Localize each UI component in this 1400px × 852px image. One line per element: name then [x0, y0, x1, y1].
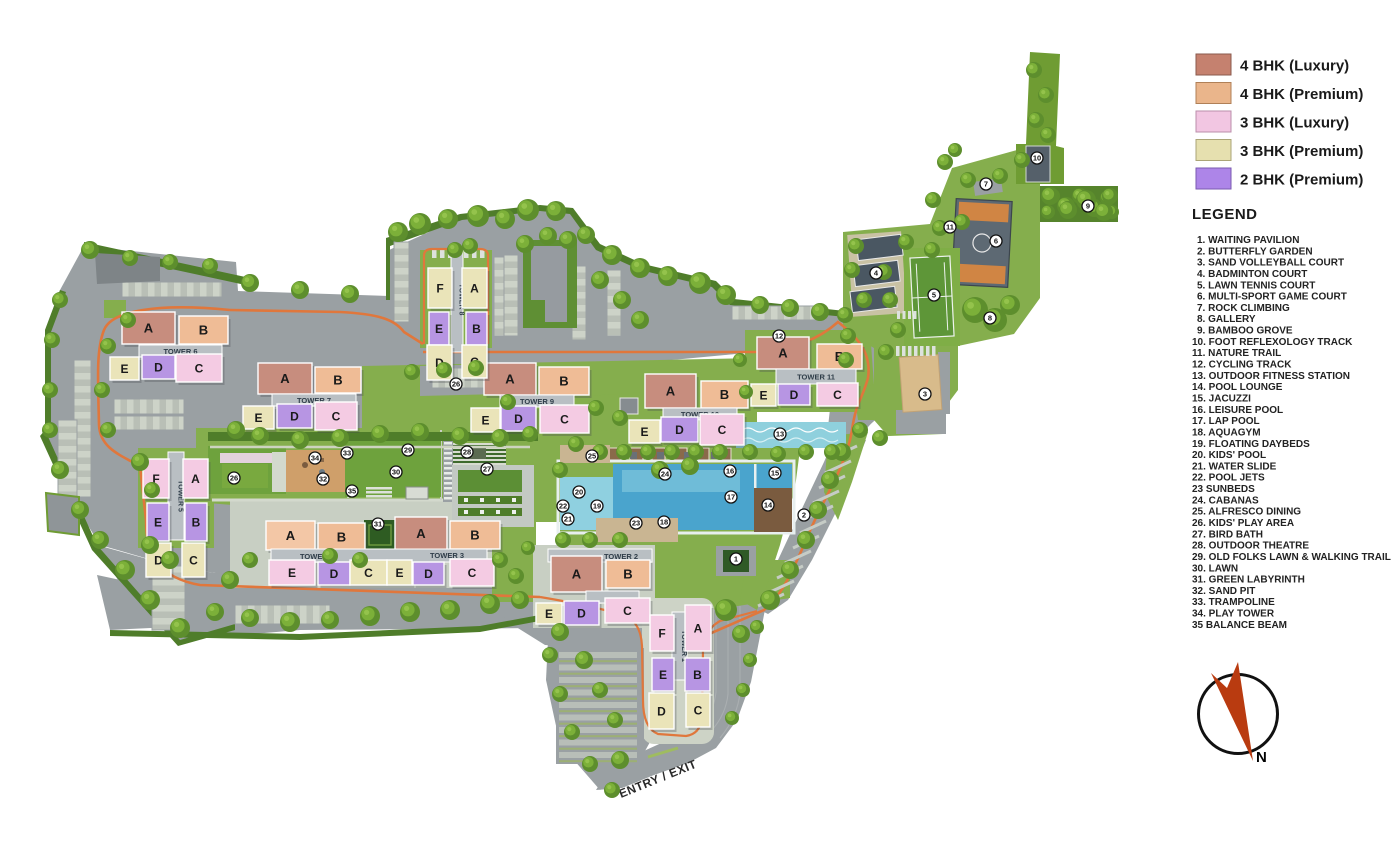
svg-text:21: 21: [564, 515, 572, 524]
svg-text:23: 23: [632, 519, 640, 528]
svg-text:E: E: [545, 607, 553, 621]
svg-text:C: C: [694, 703, 703, 717]
svg-text:15: 15: [771, 469, 779, 478]
svg-text:24: 24: [661, 470, 670, 479]
svg-text:7: 7: [984, 180, 988, 189]
svg-text:9. BAMBOO GROVE: 9. BAMBOO GROVE: [1197, 326, 1293, 337]
svg-text:18. AQUAGYM: 18. AQUAGYM: [1192, 427, 1261, 438]
svg-text:35 BALANCE BEAM: 35 BALANCE BEAM: [1192, 620, 1287, 631]
svg-text:A: A: [694, 621, 703, 635]
svg-text:17. LAP POOL: 17. LAP POOL: [1192, 416, 1260, 427]
svg-text:30. LAWN: 30. LAWN: [1192, 563, 1238, 574]
svg-text:C: C: [623, 604, 632, 618]
svg-text:14: 14: [764, 501, 773, 510]
svg-text:F: F: [436, 281, 443, 295]
svg-text:C: C: [560, 412, 569, 426]
svg-text:34: 34: [311, 454, 320, 463]
svg-text:22. POOL JETS: 22. POOL JETS: [1192, 473, 1265, 484]
svg-text:B: B: [333, 373, 342, 388]
svg-text:33. TRAMPOLINE: 33. TRAMPOLINE: [1192, 597, 1275, 608]
svg-text:A: A: [778, 346, 788, 361]
svg-text:1. WAITING PAVILION: 1. WAITING PAVILION: [1197, 235, 1299, 246]
svg-text:3: 3: [923, 390, 927, 399]
svg-text:D: D: [330, 567, 339, 581]
svg-text:E: E: [154, 515, 162, 529]
svg-text:32: 32: [319, 475, 327, 484]
svg-text:20. KIDS' POOL: 20. KIDS' POOL: [1192, 450, 1266, 461]
svg-text:C: C: [833, 388, 842, 402]
svg-text:17: 17: [727, 493, 735, 502]
svg-text:C: C: [718, 423, 727, 437]
svg-text:A: A: [470, 281, 479, 295]
svg-text:28: 28: [463, 448, 471, 457]
svg-text:B: B: [337, 530, 346, 545]
svg-text:10: 10: [1033, 154, 1041, 163]
svg-text:E: E: [659, 668, 667, 682]
svg-text:20: 20: [575, 488, 583, 497]
svg-text:19. FLOATING DAYBEDS: 19. FLOATING DAYBEDS: [1192, 439, 1310, 450]
svg-text:33: 33: [343, 449, 351, 458]
svg-text:23 SUNBEDS: 23 SUNBEDS: [1192, 484, 1255, 495]
svg-text:C: C: [468, 566, 477, 580]
svg-text:13: 13: [776, 430, 784, 439]
svg-text:B: B: [199, 323, 208, 338]
svg-text:11. NATURE TRAIL: 11. NATURE TRAIL: [1192, 348, 1281, 359]
svg-text:5: 5: [932, 291, 936, 300]
svg-text:B: B: [623, 567, 632, 582]
svg-text:25. ALFRESCO DINING: 25. ALFRESCO DINING: [1192, 507, 1301, 518]
svg-text:C: C: [364, 566, 373, 580]
svg-text:26: 26: [452, 380, 460, 389]
svg-text:2: 2: [802, 511, 806, 520]
svg-text:10. FOOT REFLEXOLOGY TRACK: 10. FOOT REFLEXOLOGY TRACK: [1192, 337, 1353, 348]
svg-text:E: E: [395, 566, 403, 580]
svg-text:A: A: [144, 321, 154, 336]
svg-text:D: D: [424, 567, 433, 581]
svg-text:27: 27: [483, 465, 491, 474]
svg-text:5. LAWN TENNIS COURT: 5. LAWN TENNIS COURT: [1197, 280, 1315, 291]
svg-text:29. OLD FOLKS LAWN & WALKING T: 29. OLD FOLKS LAWN & WALKING TRAIL: [1192, 552, 1391, 563]
svg-text:E: E: [120, 362, 128, 376]
svg-text:B: B: [693, 668, 702, 682]
svg-text:31. GREEN LABYRINTH: 31. GREEN LABYRINTH: [1192, 575, 1305, 586]
svg-text:25: 25: [588, 452, 596, 461]
svg-text:TOWER 11: TOWER 11: [797, 373, 835, 382]
svg-text:N: N: [1256, 749, 1267, 766]
svg-text:13. OUTDOOR FITNESS STATION: 13. OUTDOOR FITNESS STATION: [1192, 371, 1350, 382]
svg-text:D: D: [514, 412, 523, 426]
svg-text:3. SAND VOLLEYBALL COURT: 3. SAND VOLLEYBALL COURT: [1197, 258, 1344, 269]
svg-text:A: A: [191, 472, 200, 486]
svg-text:D: D: [790, 388, 799, 402]
svg-text:26. KIDS' PLAY AREA: 26. KIDS' PLAY AREA: [1192, 518, 1294, 529]
svg-text:B: B: [470, 528, 479, 543]
svg-text:C: C: [189, 553, 198, 567]
svg-text:E: E: [254, 411, 262, 425]
svg-text:B: B: [472, 322, 481, 336]
svg-text:B: B: [559, 374, 568, 389]
svg-text:A: A: [280, 371, 290, 386]
svg-text:7. ROCK CLIMBING: 7. ROCK CLIMBING: [1197, 303, 1290, 314]
svg-text:A: A: [416, 526, 426, 541]
svg-text:8. GALLERY: 8. GALLERY: [1197, 314, 1256, 325]
svg-text:35: 35: [348, 487, 356, 496]
svg-text:24. CABANAS: 24. CABANAS: [1192, 495, 1259, 506]
svg-text:E: E: [288, 566, 296, 580]
svg-text:30: 30: [392, 468, 400, 477]
svg-text:14. POOL LOUNGE: 14. POOL LOUNGE: [1192, 382, 1283, 393]
svg-text:A: A: [666, 384, 676, 399]
svg-text:D: D: [154, 360, 163, 374]
svg-text:18: 18: [660, 518, 668, 527]
svg-text:2. BUTTERFLY GARDEN: 2. BUTTERFLY GARDEN: [1197, 246, 1313, 257]
svg-text:D: D: [675, 423, 684, 437]
svg-text:16: 16: [726, 467, 734, 476]
svg-text:6. MULTI-SPORT GAME COURT: 6. MULTI-SPORT GAME COURT: [1197, 292, 1347, 303]
svg-text:12: 12: [775, 332, 783, 341]
svg-text:E: E: [435, 322, 443, 336]
svg-text:15. JACUZZI: 15. JACUZZI: [1192, 394, 1251, 405]
svg-text:3 BHK (Luxury): 3 BHK (Luxury): [1240, 115, 1349, 132]
svg-text:E: E: [481, 413, 489, 427]
svg-text:1: 1: [734, 555, 738, 564]
svg-text:21. WATER SLIDE: 21. WATER SLIDE: [1192, 461, 1277, 472]
svg-text:4. BADMINTON COURT: 4. BADMINTON COURT: [1197, 269, 1307, 280]
svg-text:4 BHK (Premium): 4 BHK (Premium): [1240, 86, 1363, 103]
svg-text:12. CYCLING TRACK: 12. CYCLING TRACK: [1192, 360, 1292, 371]
svg-text:B: B: [192, 515, 201, 529]
svg-text:D: D: [657, 704, 666, 718]
svg-text:A: A: [572, 567, 582, 582]
svg-text:D: D: [577, 606, 586, 620]
svg-text:19: 19: [593, 502, 601, 511]
svg-text:LEGEND: LEGEND: [1192, 206, 1258, 223]
svg-text:16. LEISURE POOL: 16. LEISURE POOL: [1192, 405, 1283, 416]
svg-text:3 BHK (Premium): 3 BHK (Premium): [1240, 143, 1363, 160]
svg-text:34. PLAY TOWER: 34. PLAY TOWER: [1192, 609, 1275, 620]
svg-text:C: C: [332, 409, 341, 423]
svg-text:E: E: [640, 425, 648, 439]
svg-text:22: 22: [559, 502, 567, 511]
svg-text:11: 11: [946, 223, 954, 232]
svg-text:27. BIRD BATH: 27. BIRD BATH: [1192, 529, 1263, 540]
svg-text:29: 29: [404, 446, 412, 455]
svg-text:9: 9: [1086, 202, 1090, 211]
svg-text:28. OUTDOOR THEATRE: 28. OUTDOOR THEATRE: [1192, 541, 1309, 552]
svg-text:8: 8: [988, 314, 992, 323]
svg-text:2 BHK (Premium): 2 BHK (Premium): [1240, 172, 1363, 189]
svg-text:26: 26: [230, 474, 238, 483]
svg-text:A: A: [286, 528, 296, 543]
svg-text:4 BHK (Luxury): 4 BHK (Luxury): [1240, 58, 1349, 75]
svg-text:A: A: [505, 372, 515, 387]
svg-text:F: F: [658, 626, 665, 640]
svg-text:C: C: [195, 361, 204, 375]
svg-text:E: E: [759, 388, 767, 402]
svg-text:B: B: [720, 387, 729, 402]
svg-text:32. SAND PIT: 32. SAND PIT: [1192, 586, 1255, 597]
svg-text:6: 6: [994, 237, 998, 246]
svg-text:31: 31: [374, 520, 382, 529]
svg-text:D: D: [290, 409, 299, 423]
